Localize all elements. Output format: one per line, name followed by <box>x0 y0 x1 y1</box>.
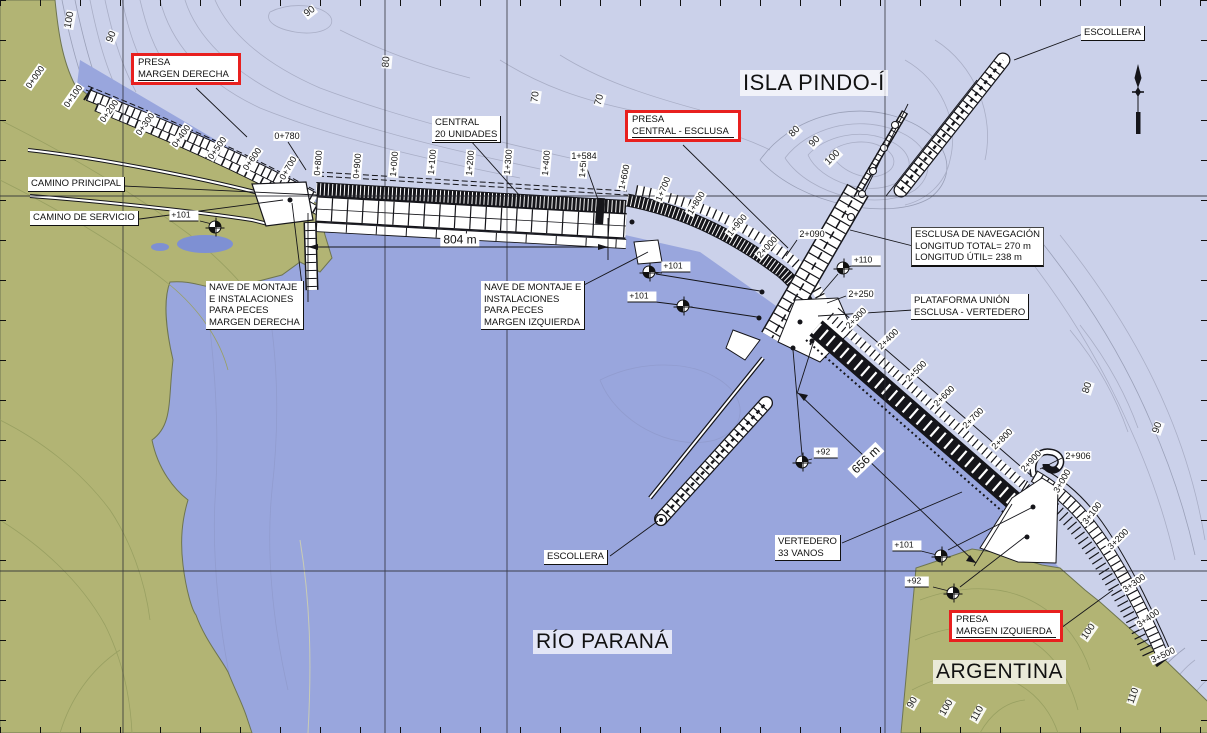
shore-pond-small <box>151 243 169 251</box>
dam-site-plan: 0+0000+1000+2000+3000+4000+5000+6000+700… <box>0 0 1207 733</box>
plan-drawing <box>0 0 1207 733</box>
shore-pond <box>177 235 233 253</box>
fish-pass-channel <box>310 222 312 290</box>
